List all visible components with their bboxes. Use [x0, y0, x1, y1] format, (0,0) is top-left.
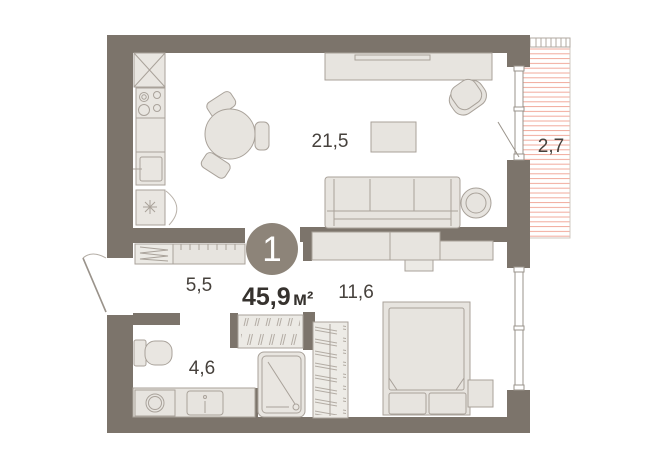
- label-living-kitchen-area: 21,5: [312, 131, 349, 152]
- bedroom-window-mark-mid: [514, 326, 524, 330]
- sofa: [325, 177, 460, 228]
- bedroom-furniture: [312, 232, 493, 418]
- living-room-furniture: [325, 53, 492, 228]
- shower: [258, 352, 305, 417]
- floor-plan-canvas: 21,5 2,7 5,5 4,6 11,6 1 45,9 м²: [0, 0, 654, 470]
- desk: [325, 53, 492, 80]
- bathroom-counter: [133, 388, 255, 417]
- wall-right-top-post: [507, 35, 530, 67]
- dishwasher-star: [143, 200, 157, 214]
- wall-top: [107, 35, 530, 53]
- balcony-door-hinge-mid: [514, 107, 524, 111]
- tv-unit: [405, 260, 433, 271]
- coat-rack-cabinet: [173, 244, 245, 264]
- label-hallway-area: 5,5: [186, 275, 212, 296]
- toilet-tank: [134, 340, 146, 366]
- cabinet-door-swing-arc: [166, 191, 177, 225]
- floor-plan: 21,5 2,7 5,5 4,6 11,6 1 45,9 м²: [0, 0, 654, 470]
- balcony-door: [498, 66, 524, 160]
- balcony-door-hinge-top: [514, 66, 524, 71]
- hall-wardrobe-hangers: [241, 318, 300, 345]
- wall-bottom: [107, 417, 530, 433]
- wall-bathroom-post: [230, 313, 238, 348]
- entrance-door-leaf: [83, 258, 106, 312]
- wall-hall-kitchen-divider: [133, 228, 245, 243]
- nightstand: [468, 380, 493, 407]
- wall-bedroom-left-upper-post: [303, 227, 312, 261]
- bedroom-window-mark-bottom: [514, 385, 524, 390]
- dining-chair-2: [255, 122, 269, 150]
- dining-set: [199, 90, 269, 181]
- entrance-door-swing-arc: [83, 254, 106, 258]
- label-bathroom-area: 4,6: [189, 358, 215, 379]
- dining-table: [205, 109, 255, 159]
- bedroom-wardrobe: [313, 322, 348, 418]
- unit-number: 1: [262, 230, 281, 269]
- wall-right-middle: [507, 160, 530, 268]
- bathroom-fixtures: [133, 340, 305, 417]
- dresser-side-unit: [440, 241, 493, 260]
- total-area-value: 45,9: [242, 283, 291, 311]
- wall-left-upper: [107, 35, 133, 258]
- bedroom-window-mark-top: [514, 267, 524, 272]
- bed: [383, 302, 470, 415]
- balcony-door-glazing: [515, 67, 523, 160]
- label-bedroom-area: 11,6: [338, 282, 374, 303]
- wall-bathroom-top: [133, 313, 180, 325]
- balcony-railing-ticks: [536, 38, 566, 47]
- bed-pillow-right: [429, 393, 466, 414]
- bed-pillow-left: [389, 393, 426, 414]
- bedroom-window: [514, 267, 524, 390]
- entrance-door: [83, 254, 106, 312]
- kitchen: [133, 53, 177, 225]
- dresser: [312, 232, 440, 260]
- wall-right-lower: [507, 390, 530, 433]
- sofa-body: [325, 177, 460, 228]
- wall-left-lower: [107, 315, 133, 433]
- kitchen-counter: [136, 118, 165, 152]
- coffee-table: [371, 122, 416, 152]
- toilet-bowl: [145, 341, 172, 365]
- total-area-unit: м²: [293, 289, 313, 310]
- label-balcony-area: 2,7: [538, 136, 564, 157]
